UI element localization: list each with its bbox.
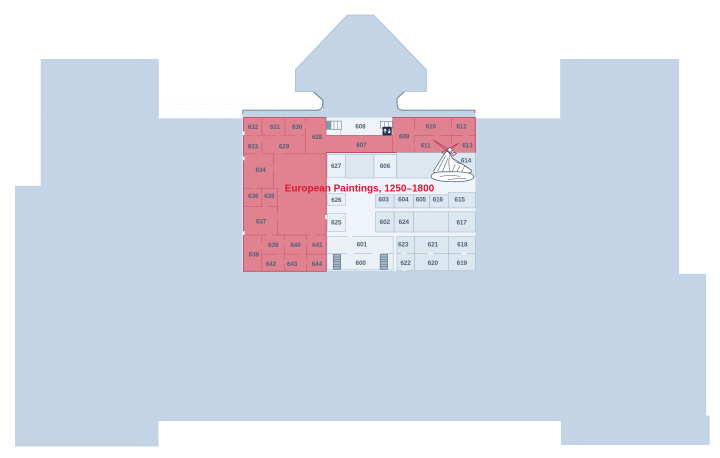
svg-text:633: 633 <box>248 143 259 150</box>
svg-text:637: 637 <box>256 219 267 226</box>
svg-text:612: 612 <box>456 124 467 131</box>
svg-text:642: 642 <box>266 261 277 268</box>
svg-text:639: 639 <box>268 242 279 249</box>
svg-text:641: 641 <box>312 242 323 249</box>
svg-text:621: 621 <box>428 241 439 248</box>
svg-text:638: 638 <box>249 251 260 258</box>
svg-text:617: 617 <box>456 219 467 226</box>
svg-text:629: 629 <box>279 143 290 150</box>
svg-text:636: 636 <box>248 193 259 200</box>
svg-text:616: 616 <box>433 197 444 204</box>
svg-text:603: 603 <box>379 197 390 204</box>
svg-text:644: 644 <box>312 261 323 268</box>
svg-text:623: 623 <box>398 241 409 248</box>
svg-text:European Paintings, 1250–1800: European Paintings, 1250–1800 <box>285 184 435 195</box>
svg-text:630: 630 <box>292 124 303 131</box>
svg-text:640: 640 <box>290 242 301 249</box>
svg-text:628: 628 <box>312 134 323 141</box>
svg-text:620: 620 <box>428 260 439 267</box>
svg-text:601: 601 <box>357 241 368 248</box>
svg-text:607: 607 <box>356 142 367 149</box>
svg-text:602: 602 <box>380 219 391 226</box>
svg-text:600: 600 <box>356 260 367 267</box>
svg-text:622: 622 <box>400 260 411 267</box>
svg-text:625: 625 <box>331 219 342 226</box>
svg-text:632: 632 <box>248 124 259 131</box>
svg-text:608: 608 <box>355 124 366 131</box>
svg-text:613: 613 <box>462 143 473 150</box>
svg-text:618: 618 <box>457 241 468 248</box>
svg-text:609: 609 <box>399 133 410 140</box>
svg-text:614: 614 <box>461 157 472 164</box>
svg-text:611: 611 <box>421 143 432 150</box>
svg-text:605: 605 <box>416 197 427 204</box>
svg-text:610: 610 <box>426 124 437 131</box>
svg-text:619: 619 <box>457 260 468 267</box>
svg-text:627: 627 <box>331 163 342 170</box>
svg-text:643: 643 <box>287 261 298 268</box>
svg-text:624: 624 <box>399 219 410 226</box>
svg-text:615: 615 <box>455 197 466 204</box>
svg-text:604: 604 <box>398 197 409 204</box>
svg-text:606: 606 <box>380 163 391 170</box>
svg-text:635: 635 <box>264 193 275 200</box>
svg-text:631: 631 <box>270 124 281 131</box>
svg-text:634: 634 <box>255 167 266 174</box>
svg-text:626: 626 <box>331 197 342 204</box>
